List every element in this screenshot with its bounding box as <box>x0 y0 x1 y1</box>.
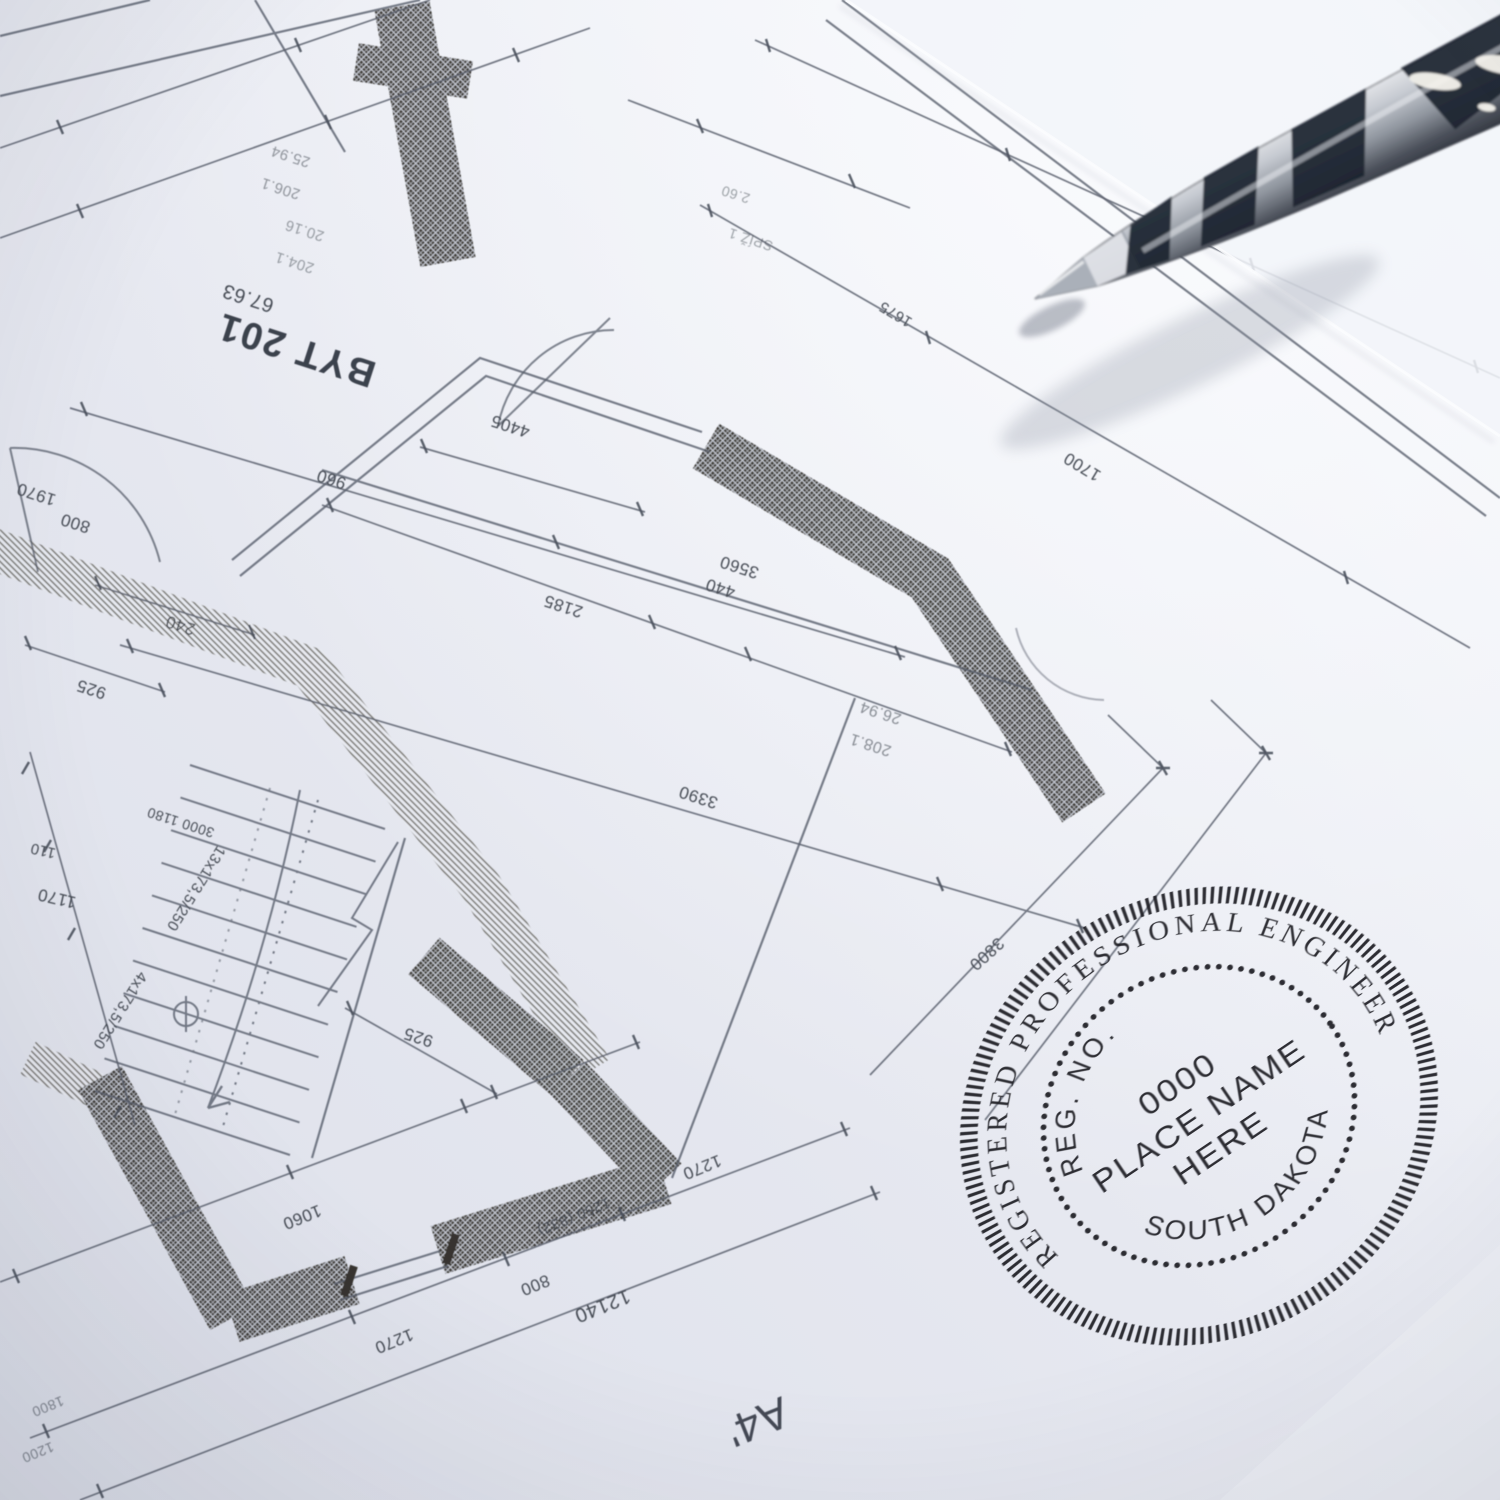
vignette-overlay <box>0 0 1500 1500</box>
photo-scene: BYT 201 67.63 206.1 25.94 204.1 20.16 20… <box>0 0 1500 1500</box>
photo-of-blueprint-with-stamp: BYT 201 67.63 206.1 25.94 204.1 20.16 20… <box>0 0 1500 1500</box>
